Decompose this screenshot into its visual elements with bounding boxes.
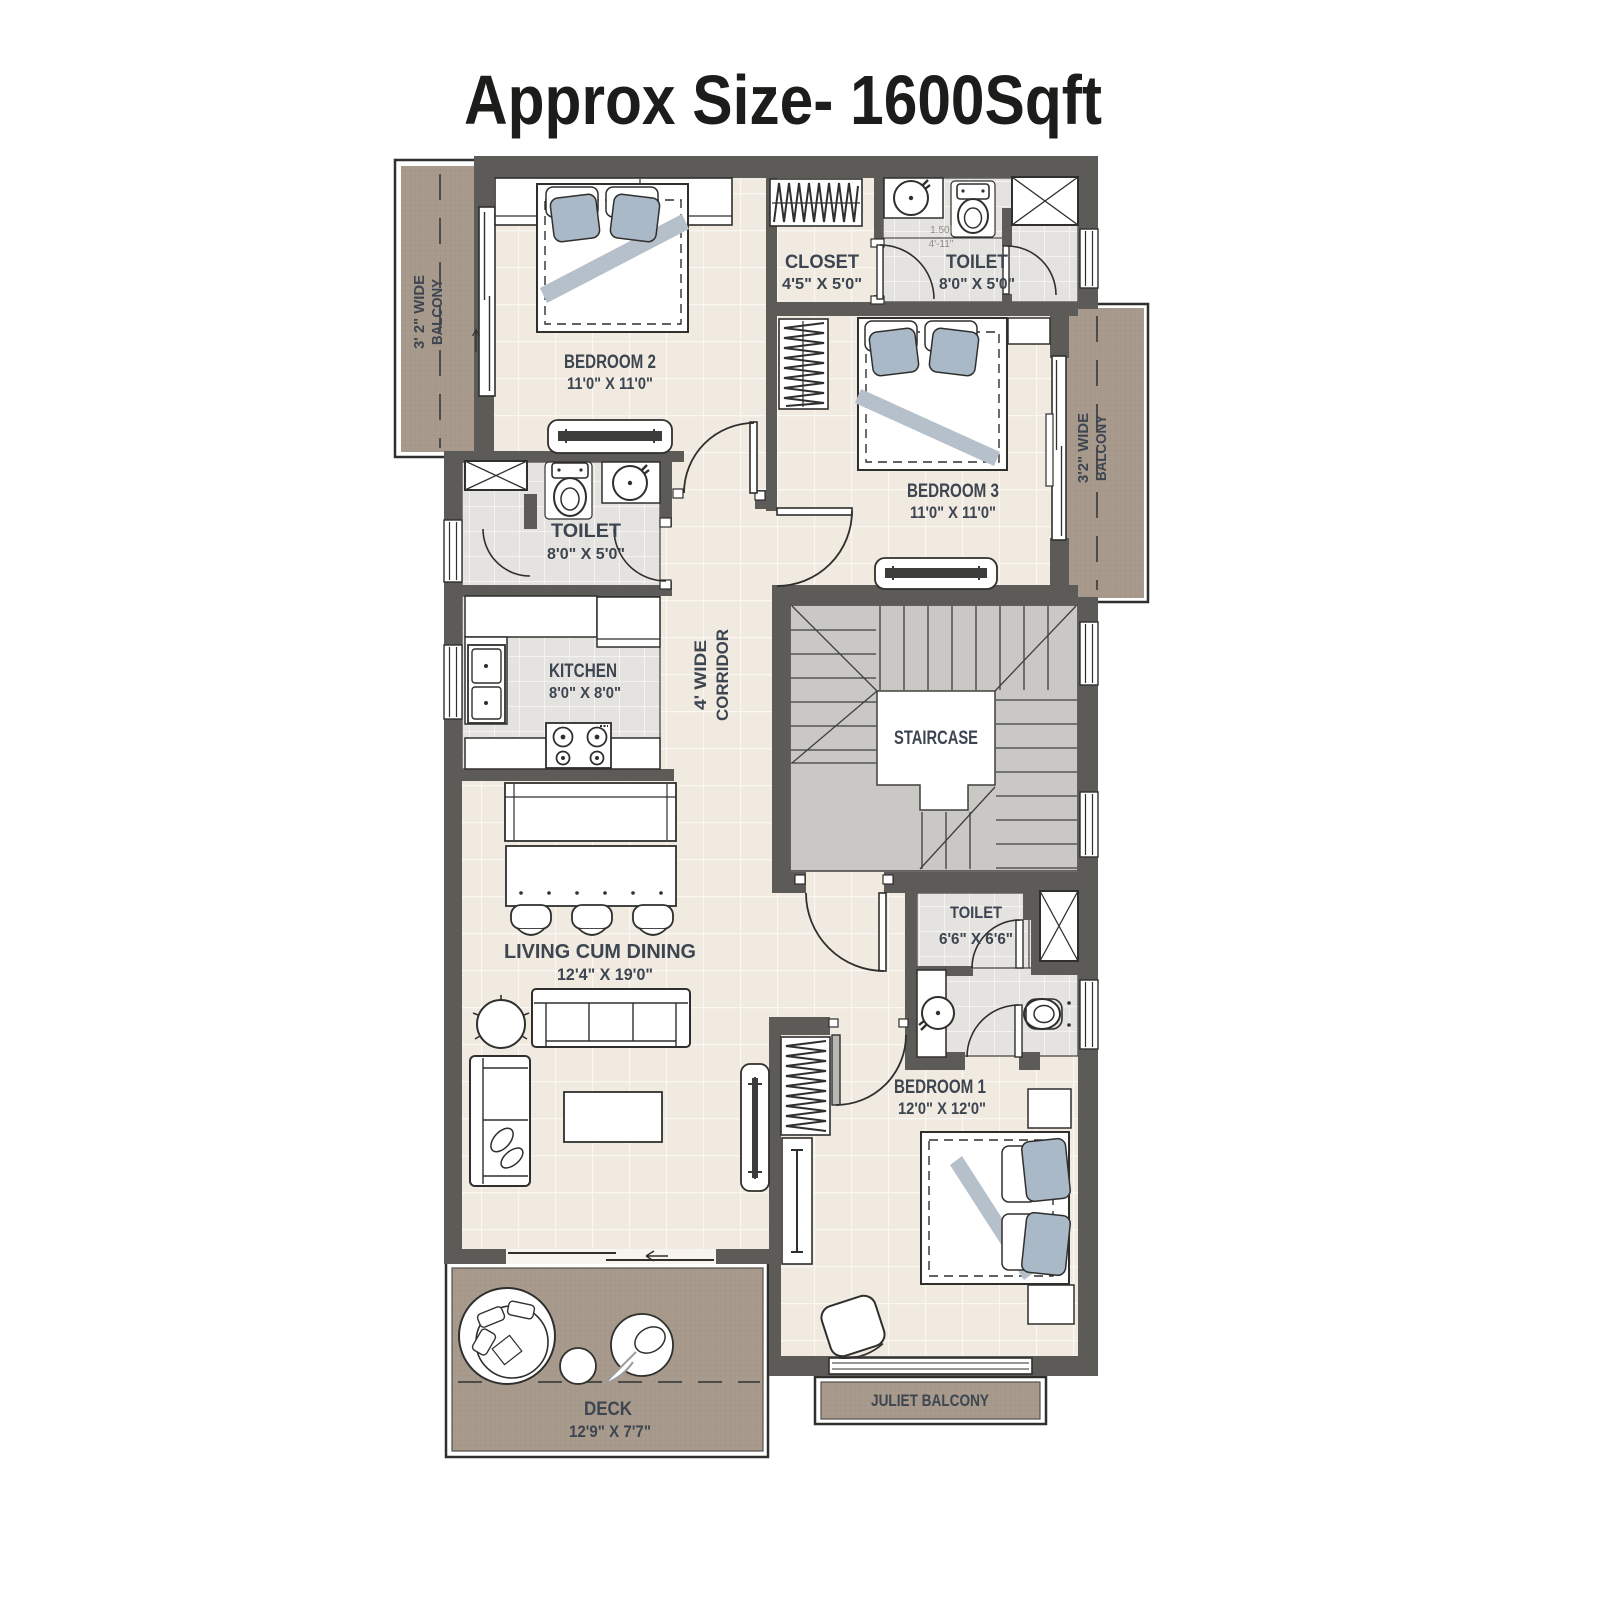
svg-text:3' 2" WIDE: 3' 2" WIDE xyxy=(411,275,428,349)
svg-text:TOILET: TOILET xyxy=(946,252,1008,273)
svg-text:BALCONY: BALCONY xyxy=(429,279,446,345)
svg-text:1.50l: 1.50l xyxy=(930,225,952,236)
svg-text:8'0" X 5'0": 8'0" X 5'0" xyxy=(939,276,1015,293)
svg-text:8'0" X 5'0": 8'0" X 5'0" xyxy=(547,546,625,563)
svg-text:LIVING CUM DINING: LIVING CUM DINING xyxy=(504,941,696,963)
svg-text:11'0" X 11'0": 11'0" X 11'0" xyxy=(910,503,996,522)
svg-text:12'4" X 19'0": 12'4" X 19'0" xyxy=(557,965,653,984)
svg-text:8'0" X 8'0": 8'0" X 8'0" xyxy=(549,685,621,702)
svg-text:4'5" X 5'0": 4'5" X 5'0" xyxy=(782,276,862,293)
svg-text:STAIRCASE: STAIRCASE xyxy=(894,728,978,749)
svg-text:BEDROOM 3: BEDROOM 3 xyxy=(907,481,999,502)
svg-text:DECK: DECK xyxy=(584,1399,632,1420)
svg-text:CLOSET: CLOSET xyxy=(785,252,859,273)
svg-text:KITCHEN: KITCHEN xyxy=(549,661,617,682)
svg-text:11'0" X 11'0": 11'0" X 11'0" xyxy=(567,374,653,393)
svg-text:4'-11": 4'-11" xyxy=(929,239,954,250)
svg-text:6'6" X 6'6": 6'6" X 6'6" xyxy=(939,931,1013,948)
svg-text:TOILET: TOILET xyxy=(551,521,621,542)
svg-text:BEDROOM 1: BEDROOM 1 xyxy=(894,1077,986,1098)
svg-text:TOILET: TOILET xyxy=(950,903,1003,922)
svg-text:BALCONY: BALCONY xyxy=(1093,415,1110,481)
svg-text:CORRIDOR: CORRIDOR xyxy=(713,629,732,721)
svg-text:12'0" X 12'0": 12'0" X 12'0" xyxy=(898,1099,986,1118)
svg-text:JULIET BALCONY: JULIET BALCONY xyxy=(871,1391,990,1410)
svg-text:12'9" X 7'7": 12'9" X 7'7" xyxy=(569,1422,651,1441)
svg-text:4' WIDE: 4' WIDE xyxy=(691,640,710,710)
svg-text:BEDROOM 2: BEDROOM 2 xyxy=(564,352,656,373)
svg-text:Approx Size- 1600Sqft: Approx Size- 1600Sqft xyxy=(464,61,1102,139)
svg-text:3'2" WIDE: 3'2" WIDE xyxy=(1075,413,1092,483)
